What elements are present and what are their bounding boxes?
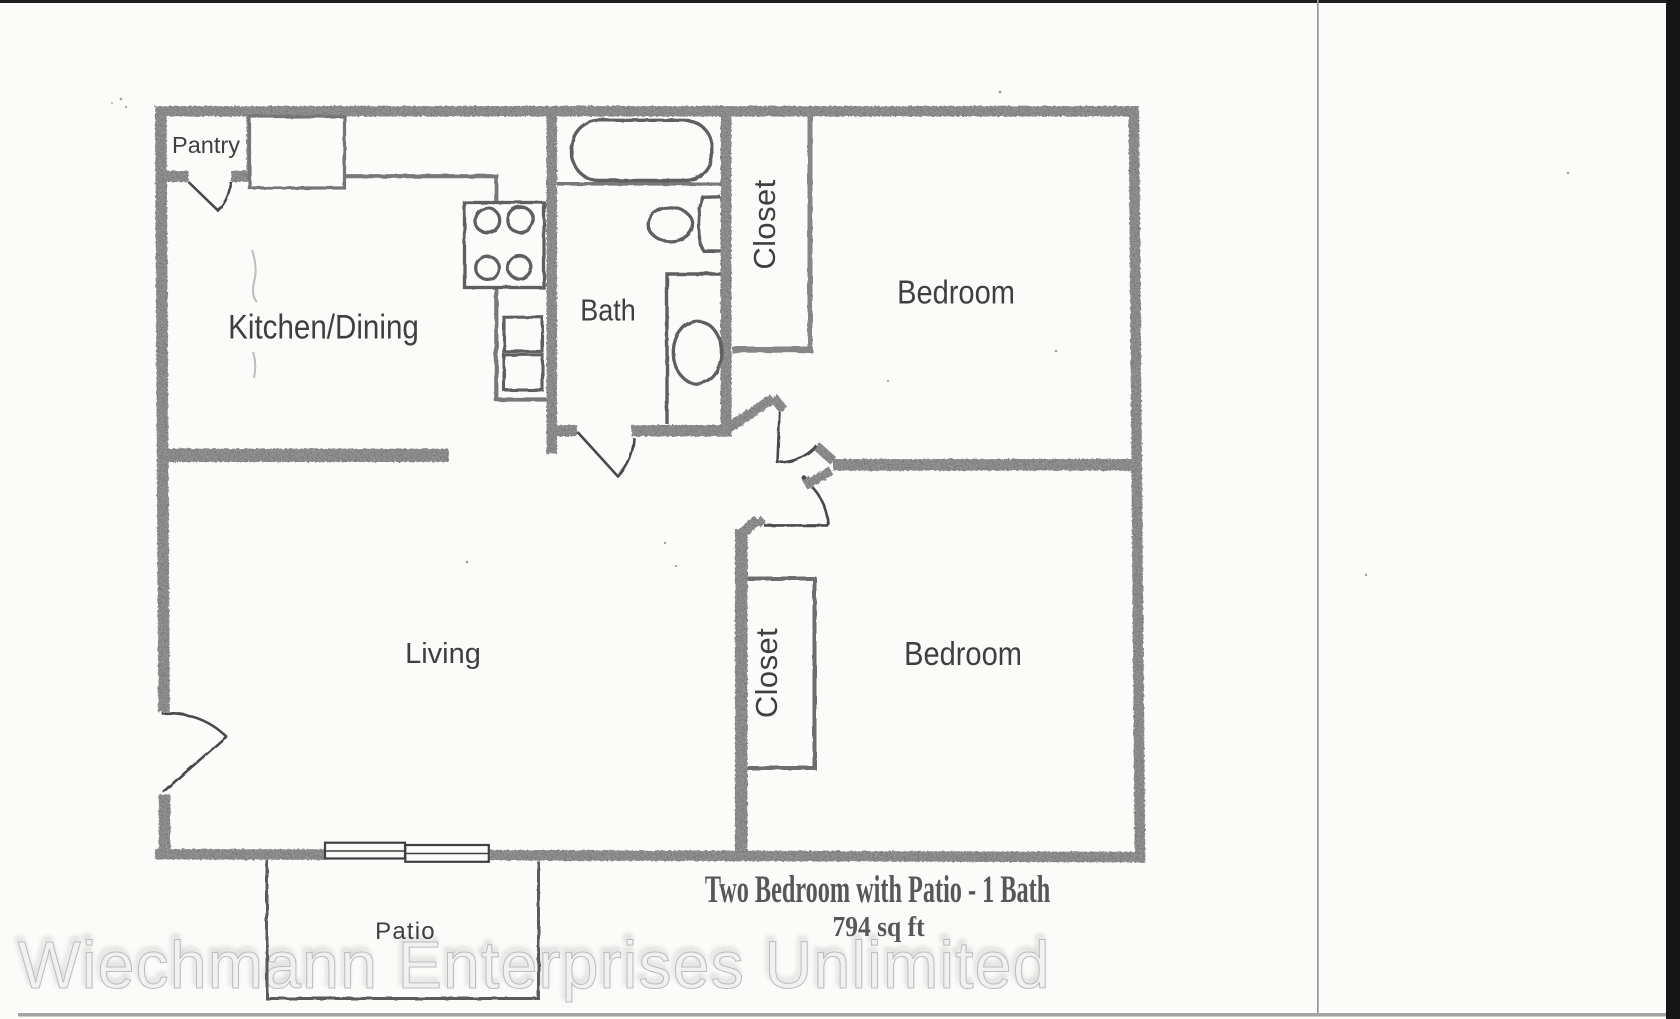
svg-text:Bath: Bath (580, 294, 635, 328)
svg-text:Closet: Closet (749, 628, 784, 718)
svg-text:Kitchen/Dining: Kitchen/Dining (228, 308, 419, 346)
svg-text:Bedroom: Bedroom (897, 274, 1015, 311)
svg-text:Patio: Patio (375, 918, 436, 945)
svg-text:Bedroom: Bedroom (904, 635, 1022, 672)
svg-text:794 sq ft: 794 sq ft (832, 911, 924, 943)
svg-text:Pantry: Pantry (172, 132, 240, 158)
svg-text:Living: Living (405, 638, 481, 670)
svg-text:Closet: Closet (747, 179, 782, 269)
svg-text:Two Bedroom with Patio - 1 Bat: Two Bedroom with Patio - 1 Bath (705, 868, 1050, 911)
